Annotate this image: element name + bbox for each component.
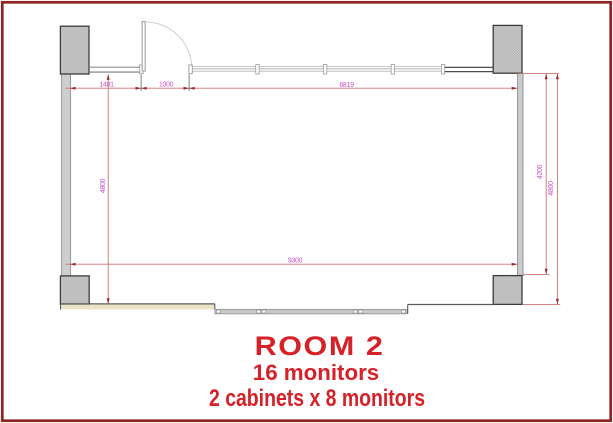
svg-text:1000: 1000 bbox=[159, 82, 174, 89]
svg-text:1481: 1481 bbox=[99, 82, 114, 89]
svg-text:9300: 9300 bbox=[288, 258, 303, 265]
svg-text:16 monitors: 16 monitors bbox=[253, 360, 379, 385]
svg-text:4800: 4800 bbox=[100, 178, 107, 193]
svg-text:4800: 4800 bbox=[548, 181, 555, 196]
svg-text:6819: 6819 bbox=[339, 82, 354, 89]
svg-text:2 cabinets x 8 monitors: 2 cabinets x 8 monitors bbox=[209, 384, 425, 412]
svg-text:ROOM 2: ROOM 2 bbox=[255, 332, 385, 362]
svg-text:4200: 4200 bbox=[537, 164, 544, 179]
